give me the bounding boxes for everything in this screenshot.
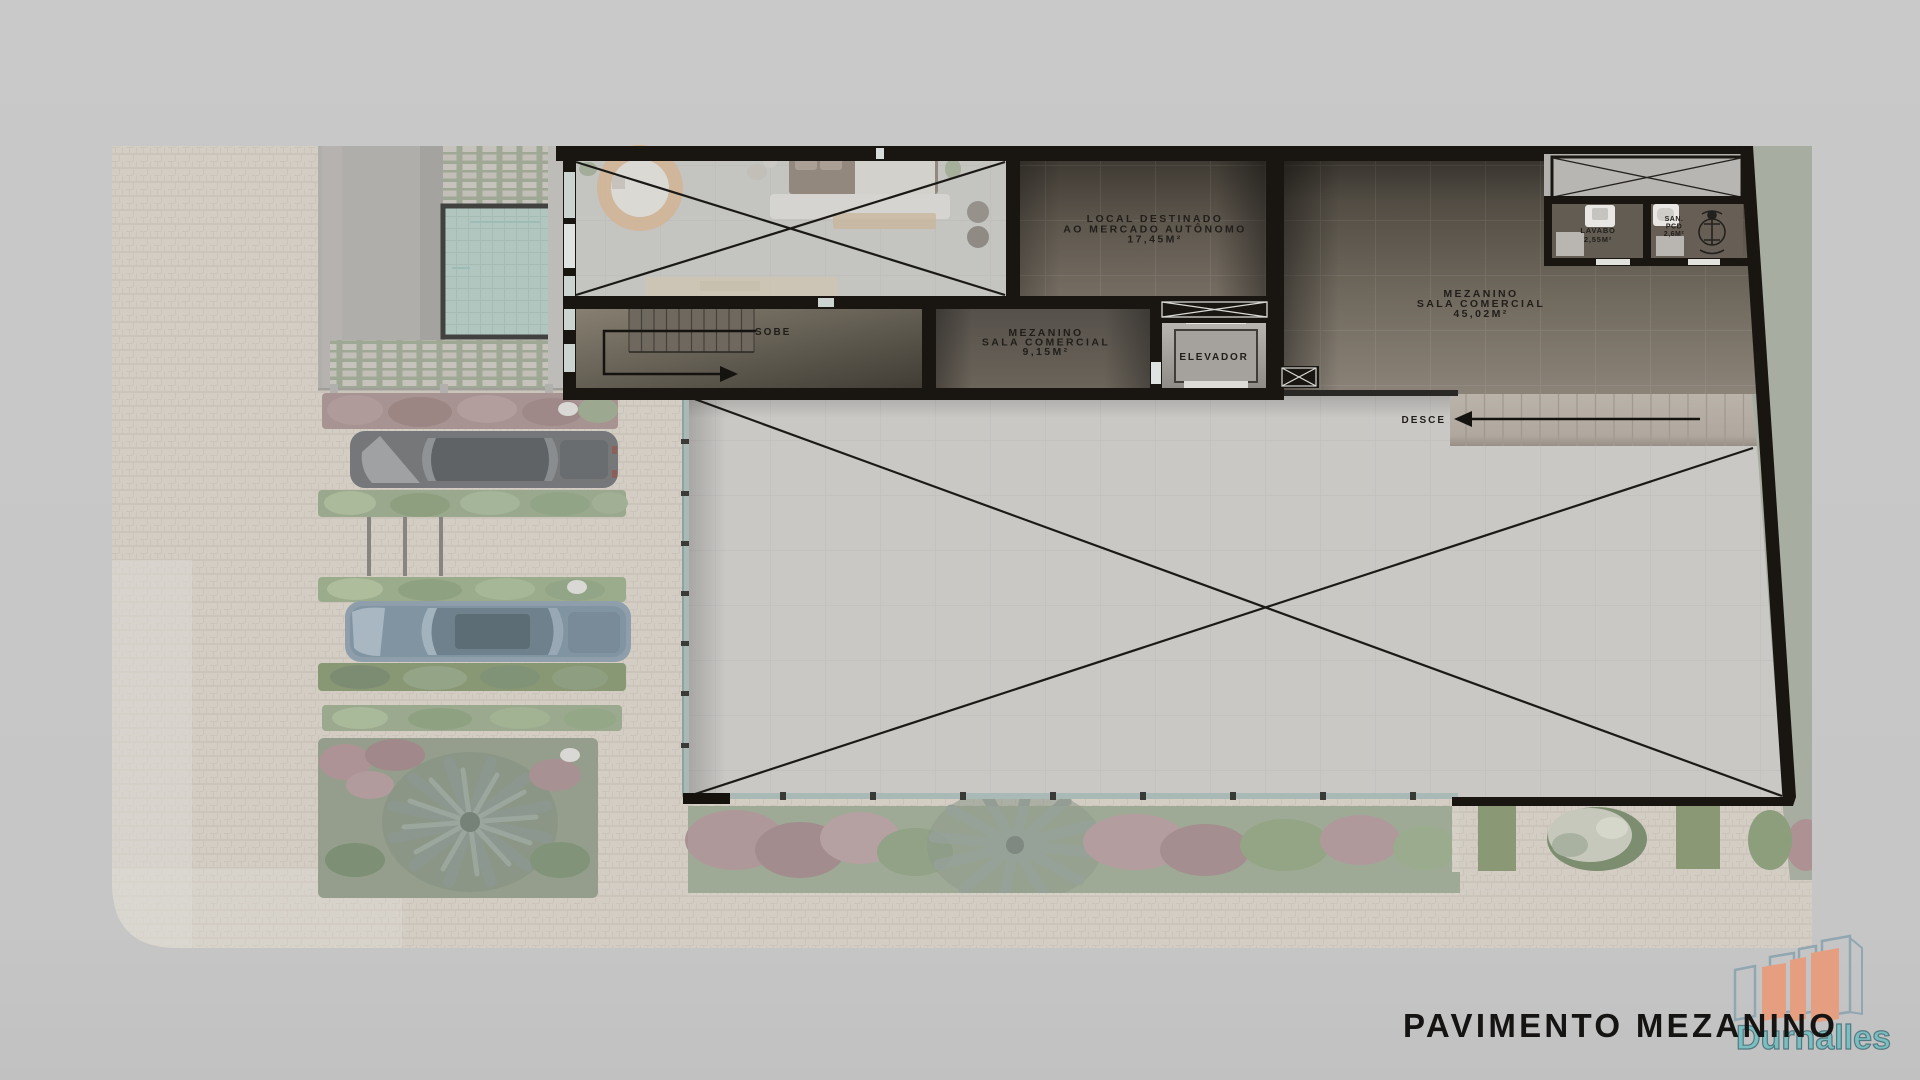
svg-text:SOBE: SOBE bbox=[755, 327, 791, 338]
svg-text:SAN.: SAN. bbox=[1665, 216, 1684, 223]
svg-text:LAVABO: LAVABO bbox=[1580, 226, 1615, 235]
svg-text:2,6M²: 2,6M² bbox=[1664, 231, 1685, 238]
svg-text:2,55M²: 2,55M² bbox=[1584, 235, 1612, 244]
svg-text:DESCE: DESCE bbox=[1402, 415, 1446, 426]
svg-text:45,02M²: 45,02M² bbox=[1453, 308, 1508, 320]
svg-text:PAVIMENTO MEZANINO: PAVIMENTO MEZANINO bbox=[1403, 1007, 1838, 1044]
svg-text:PCD: PCD bbox=[1666, 224, 1682, 231]
svg-text:ELEVADOR: ELEVADOR bbox=[1179, 352, 1248, 363]
svg-text:9,15M²: 9,15M² bbox=[1022, 346, 1069, 358]
svg-text:17,45M²: 17,45M² bbox=[1127, 234, 1182, 246]
